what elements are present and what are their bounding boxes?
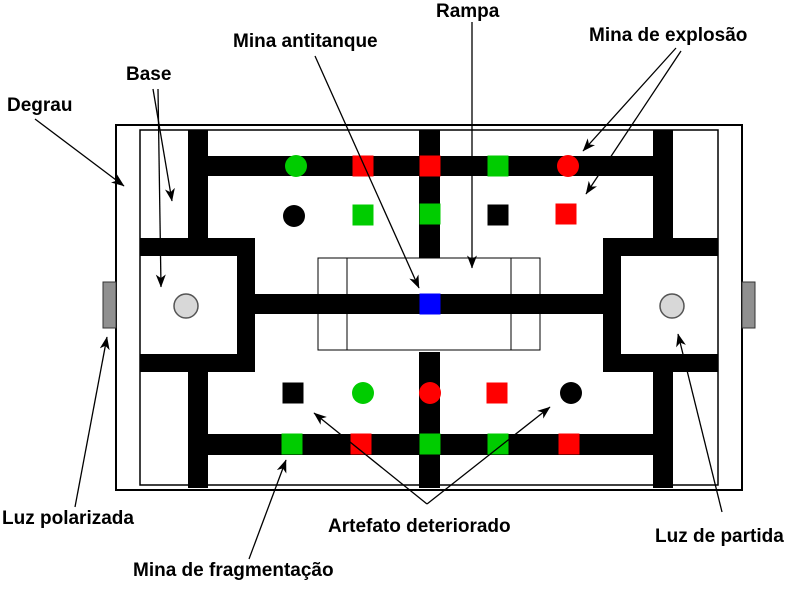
wall-right-wall-upper bbox=[653, 130, 673, 238]
mine-green-square bbox=[420, 204, 441, 225]
label-luz-de-partida: Luz de partida bbox=[655, 526, 784, 547]
mine-blue-square bbox=[420, 294, 441, 315]
degrau-arrow bbox=[35, 119, 124, 186]
label-base: Base bbox=[126, 64, 171, 85]
mine-green-square bbox=[488, 156, 509, 177]
mine-red-square bbox=[420, 156, 441, 177]
arena-diagram: Degrau Base Mina antitanque Rampa Mina d… bbox=[0, 0, 807, 600]
label-artefato-deteriorado: Artefato deteriorado bbox=[328, 516, 511, 537]
left-start-light bbox=[174, 294, 198, 318]
wall-right-wall-lower bbox=[653, 372, 673, 488]
mine-red-square bbox=[487, 383, 508, 404]
mine-green-square bbox=[282, 434, 303, 455]
mine-black-square bbox=[488, 205, 509, 226]
mine-green-circle bbox=[352, 382, 374, 404]
label-degrau: Degrau bbox=[7, 95, 72, 116]
wall-center-wall-lower bbox=[419, 352, 440, 488]
mine-red-circle bbox=[557, 155, 579, 177]
label-mina-antitanque: Mina antitanque bbox=[233, 31, 378, 52]
mine-green-circle bbox=[285, 155, 307, 177]
wall-left-wall-upper bbox=[188, 130, 208, 238]
mine-red-square bbox=[353, 156, 374, 177]
mine-red-square bbox=[556, 204, 577, 225]
mine-black-circle bbox=[283, 205, 305, 227]
wall-right-base-bottom bbox=[603, 354, 718, 372]
mine-black-square bbox=[283, 383, 304, 404]
label-mina-de-fragmentacao: Mina de fragmentação bbox=[133, 560, 334, 581]
right-start-light bbox=[660, 294, 684, 318]
mine-green-square bbox=[488, 434, 509, 455]
wall-left-wall-lower bbox=[188, 372, 208, 488]
label-mina-de-explosao: Mina de explosão bbox=[589, 25, 747, 46]
right-step bbox=[742, 282, 755, 328]
mine-black-circle bbox=[560, 382, 582, 404]
luz-polarizada-arrow bbox=[75, 337, 107, 507]
wall-left-base-bottom bbox=[140, 354, 255, 372]
mine-red-circle bbox=[419, 382, 441, 404]
mine-red-square bbox=[559, 434, 580, 455]
mine-green-square bbox=[420, 434, 441, 455]
mine-green-square bbox=[353, 205, 374, 226]
wall-right-base-left bbox=[603, 238, 621, 372]
label-luz-polarizada: Luz polarizada bbox=[2, 508, 134, 529]
left-step bbox=[103, 282, 116, 328]
label-rampa: Rampa bbox=[436, 1, 499, 22]
wall-left-base-right bbox=[237, 238, 255, 372]
wall-center-wall-upper bbox=[419, 130, 440, 258]
